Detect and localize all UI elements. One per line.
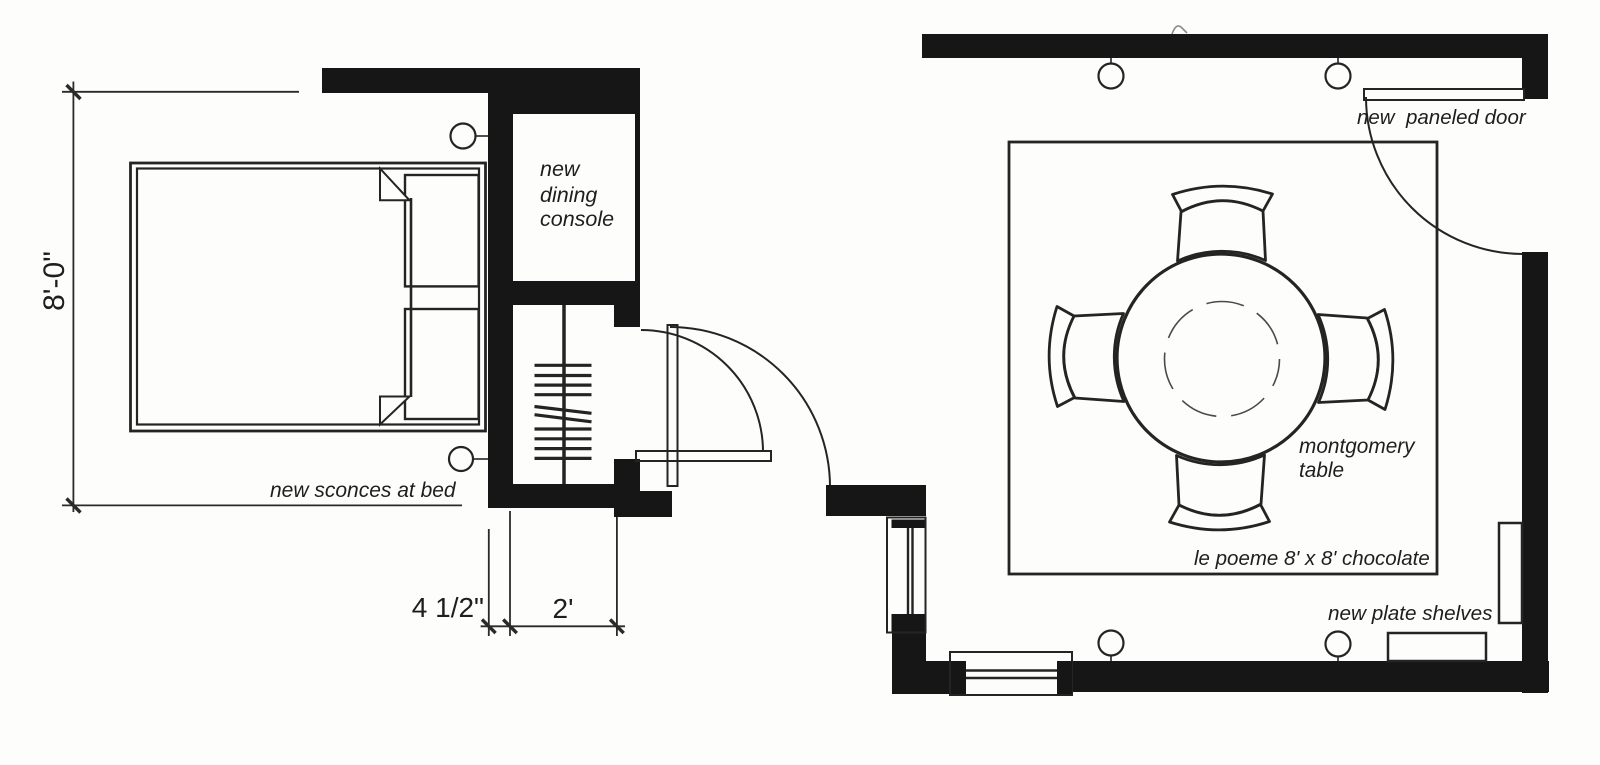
svg-text:console: console [540,207,614,231]
svg-text:new plate shelves: new plate shelves [1328,602,1492,625]
svg-text:montgomery: montgomery [1299,435,1416,458]
svg-text:le poeme 8' x 8' chocolate: le poeme 8' x 8' chocolate [1194,547,1430,570]
svg-text:8'-0": 8'-0" [38,251,71,311]
svg-text:4 1/2": 4 1/2" [412,592,484,623]
svg-text:new: new [540,157,581,181]
svg-text:dining: dining [540,183,597,207]
svg-text:table: table [1299,459,1344,482]
svg-text:new paneled door: new paneled door [1357,106,1527,129]
svg-text:2': 2' [553,593,574,624]
svg-text:new sconces at bed: new sconces at bed [270,479,457,502]
